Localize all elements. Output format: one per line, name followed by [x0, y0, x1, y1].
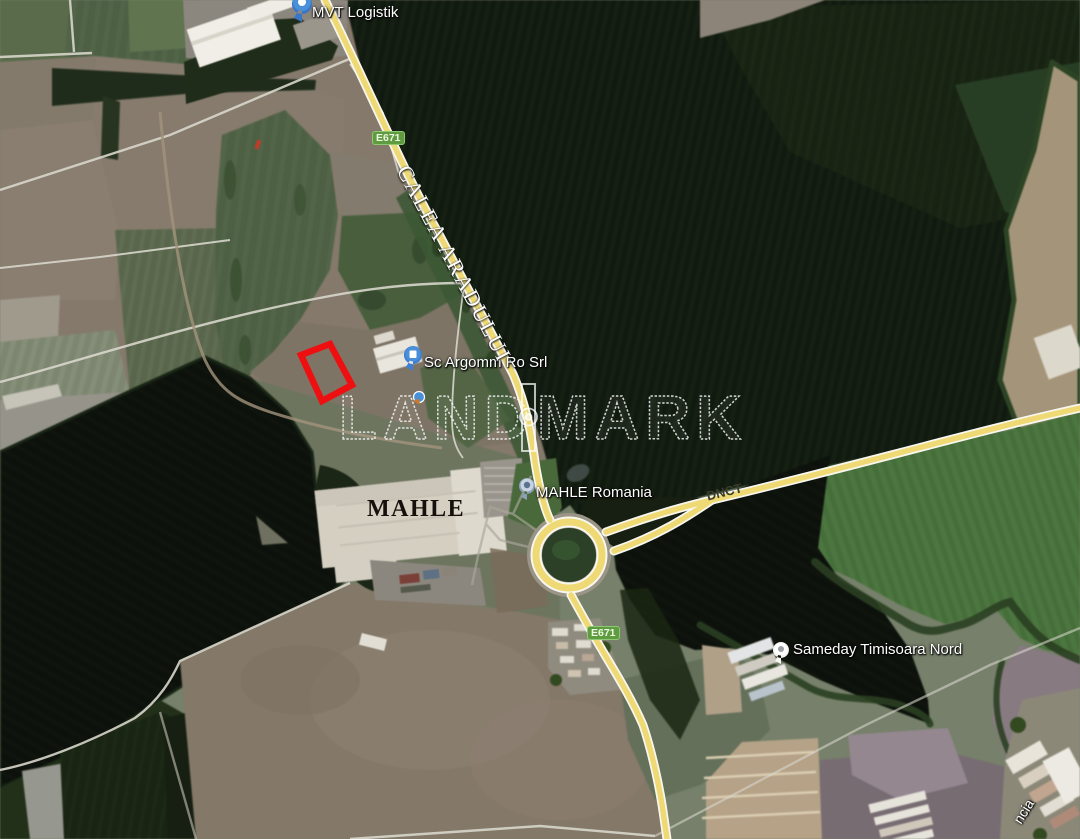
svg-text:LAND: LAND	[339, 384, 535, 453]
svg-text:MARK: MARK	[537, 384, 747, 453]
